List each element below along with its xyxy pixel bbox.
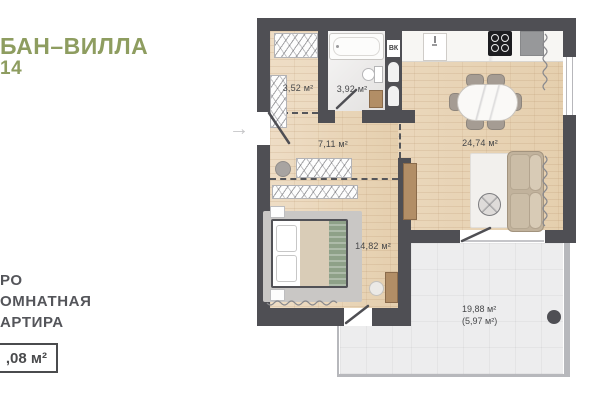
double-bed xyxy=(271,219,348,288)
nightstand xyxy=(270,206,285,218)
desk-chair xyxy=(369,281,384,296)
bed-blanket xyxy=(300,221,329,286)
fridge xyxy=(520,31,544,56)
pillow xyxy=(276,225,297,252)
plumbing-riser-icon xyxy=(388,62,399,82)
burner-icon xyxy=(491,44,499,52)
coffee-table xyxy=(478,193,501,216)
room-label-kitchen-living: 24,74 м² xyxy=(462,138,498,148)
total-area-badge: ,08 м² xyxy=(0,343,58,373)
terrace-column xyxy=(547,310,561,324)
zone-divider-vertical xyxy=(399,124,401,158)
project-title: БАН–ВИЛЛА xyxy=(0,33,148,60)
terrace-area-full: 19,88 м² xyxy=(462,303,497,315)
apartment-type-line3: АРТИРА xyxy=(0,314,64,331)
bathtub xyxy=(329,33,384,60)
wall-right-upper xyxy=(563,31,576,57)
vent-shaft-box: ВК xyxy=(387,40,400,57)
wall-left-upper xyxy=(257,18,270,112)
floor-plan-page: БАН–ВИЛЛА 14 РО ОМНАТНАЯ АРТИРА ,08 м² →… xyxy=(0,0,600,400)
kitchen-sink xyxy=(423,33,447,61)
apartment-type-line1: РО xyxy=(0,272,23,289)
wall-bedroom-bottom-right xyxy=(372,308,398,326)
bed-throw xyxy=(329,221,346,286)
cooktop xyxy=(488,31,512,56)
vent-shaft-label: ВК xyxy=(389,45,398,52)
toilet-bowl xyxy=(362,68,375,81)
wall-dressing-bathroom xyxy=(318,31,328,111)
zone-divider-horizontal xyxy=(270,178,398,180)
burner-icon xyxy=(491,34,499,42)
room-label-terrace: 19,88 м² (5,97 м²) xyxy=(462,303,497,327)
drain-icon xyxy=(336,45,339,48)
sofa-back-cushion xyxy=(529,192,542,229)
faucet-icon xyxy=(434,36,436,43)
wall-hall-top-b xyxy=(362,110,415,123)
terrace-area-coefficient: (5,97 м²) xyxy=(462,315,497,327)
plumbing-riser-icon xyxy=(388,86,399,106)
wall-right-lower xyxy=(563,115,576,243)
project-number: 14 xyxy=(0,58,22,80)
terrace-railing-right xyxy=(564,243,570,377)
room-label-bedroom: 14,82 м² xyxy=(355,241,391,251)
nightstand xyxy=(270,289,285,301)
wall-hall-top-a xyxy=(318,110,335,123)
burner-icon xyxy=(501,44,509,52)
bathroom-cabinet xyxy=(369,90,383,108)
wall-top xyxy=(257,18,576,31)
entrance-arrow-icon: → xyxy=(229,118,249,141)
wall-living-bottom-right xyxy=(545,230,576,243)
room-label-bathroom: 3,92 м² xyxy=(337,84,368,94)
pillow xyxy=(276,255,297,282)
terrace-railing-left xyxy=(337,326,339,376)
sofa-back-cushion xyxy=(529,154,542,191)
pouf xyxy=(275,161,291,177)
total-area-value: ,08 м² xyxy=(6,350,47,367)
terrace-railing-bottom xyxy=(337,374,568,377)
sofa xyxy=(507,151,544,232)
wardrobe-hall-upper xyxy=(296,158,352,178)
terrace-floor-extension xyxy=(340,326,411,374)
faucet-knob xyxy=(432,44,437,46)
wardrobe-hall-lower xyxy=(272,185,358,199)
bathtub-basin xyxy=(333,37,380,56)
sofa-seat xyxy=(510,193,530,229)
toilet-tank xyxy=(374,66,383,83)
room-label-dressing: 3,52 м² xyxy=(283,83,314,93)
living-rug xyxy=(470,153,511,228)
wardrobe-dressing-top xyxy=(274,33,318,58)
room-label-hallway: 7,11 м² xyxy=(318,139,348,149)
bedroom-terrace-door-leaf xyxy=(346,306,368,323)
burner-icon xyxy=(501,34,509,42)
tv-stand xyxy=(403,163,417,220)
dining-table xyxy=(457,84,518,121)
window-right xyxy=(563,57,576,115)
wall-bedroom-bottom-left xyxy=(257,308,344,326)
sofa-seat xyxy=(510,154,530,190)
desk xyxy=(385,272,398,303)
apartment-type-line2: ОМНАТНАЯ xyxy=(0,293,92,310)
